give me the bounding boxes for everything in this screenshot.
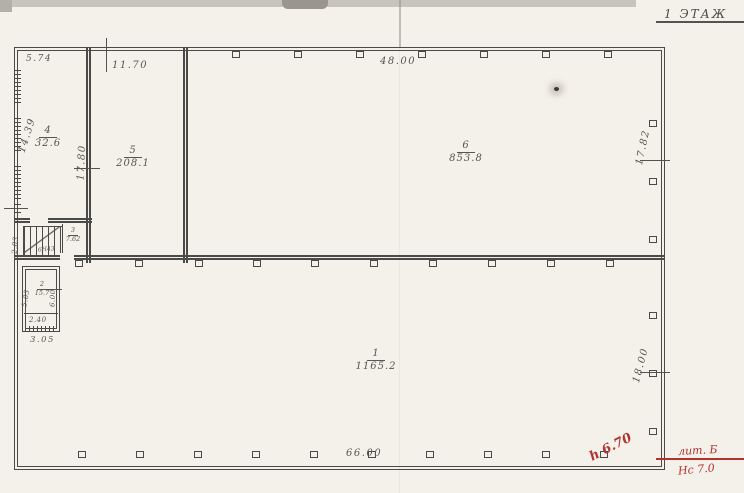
room-2-label: 2 15.7 [30,281,54,298]
room2-window-hatch [25,326,57,331]
ns-annotation: Нс 7.0 [678,461,716,477]
dim-top-left-label: 5.74 [26,54,52,64]
ink-smudge [554,87,559,91]
room-1-label: 1 1165.2 [346,348,406,372]
room4-bottom-wall [14,218,92,223]
dim-room2-inner-width-label: 2.40 [29,316,47,324]
column-pier [232,51,240,58]
column-pier [75,260,83,267]
dimension-tick [106,38,107,72]
room-area: 208.1 [105,158,161,170]
room-4-label: 4 32.6 [28,125,68,149]
door-opening [60,253,74,261]
column-pier [311,260,319,267]
room-5-label: 5 208.1 [105,145,161,169]
stair-note-label: 6Н43 [38,245,55,253]
scanned-floor-plan-page: 1 ЭТАЖ [0,0,744,493]
room-number: 4 [39,125,56,138]
column-pier [195,260,203,267]
column-pier [547,260,555,267]
room-area: 15.7 [30,290,54,298]
column-pier [194,451,202,458]
room-area: 32.6 [28,138,68,150]
scan-edge-corner [0,0,12,12]
column-pier [136,451,144,458]
room-area: 1165.2 [346,361,406,373]
window-hatch [15,204,21,216]
column-pier [310,451,318,458]
column-pier [649,178,657,185]
room-number: 5 [124,145,141,158]
litera-annotation: лит. Б [678,443,718,458]
dim-room6-width-label: 48.00 [380,56,416,67]
litera-underline [656,458,744,460]
room-3-label: 3 7.62 [60,227,86,244]
column-pier [426,451,434,458]
floor-title-underline [656,21,744,23]
dim-wall45-height-label: 17.80 [75,140,88,181]
column-pier [649,236,657,243]
column-pier [649,428,657,435]
column-pier [484,451,492,458]
room-area: 853.8 [438,153,494,165]
room-area: 7.62 [60,236,86,244]
column-pier [604,51,612,58]
floor-title: 1 ЭТАЖ [664,7,727,21]
column-pier [488,260,496,267]
room-number: 6 [457,140,474,153]
column-pier [252,451,260,458]
column-pier [135,260,143,267]
wall-room5-room6 [183,47,188,263]
column-pier [370,260,378,267]
dimension-tick [4,208,28,209]
room-number: 1 [367,348,384,361]
column-pier [253,260,261,267]
column-pier [542,451,550,458]
window-hatch [15,70,21,104]
column-pier [294,51,302,58]
column-pier [418,51,426,58]
column-pier [649,312,657,319]
column-pier [480,51,488,58]
column-pier [356,51,364,58]
column-pier [78,451,86,458]
column-pier [542,51,550,58]
column-pier [429,260,437,267]
middle-wall [14,255,665,260]
room-6-label: 6 853.8 [438,140,494,164]
dim-room5-width-label: 11.70 [112,60,148,71]
dim-bottom-width-label: 66.00 [346,448,382,459]
scan-edge-blotch [282,0,328,9]
column-pier [606,260,614,267]
door-opening [30,216,48,223]
dim-room2-outer-width-label: 3.05 [30,335,55,345]
window-hatch [15,166,21,200]
room2-divider [24,313,58,314]
paper-crease-line [399,0,401,47]
